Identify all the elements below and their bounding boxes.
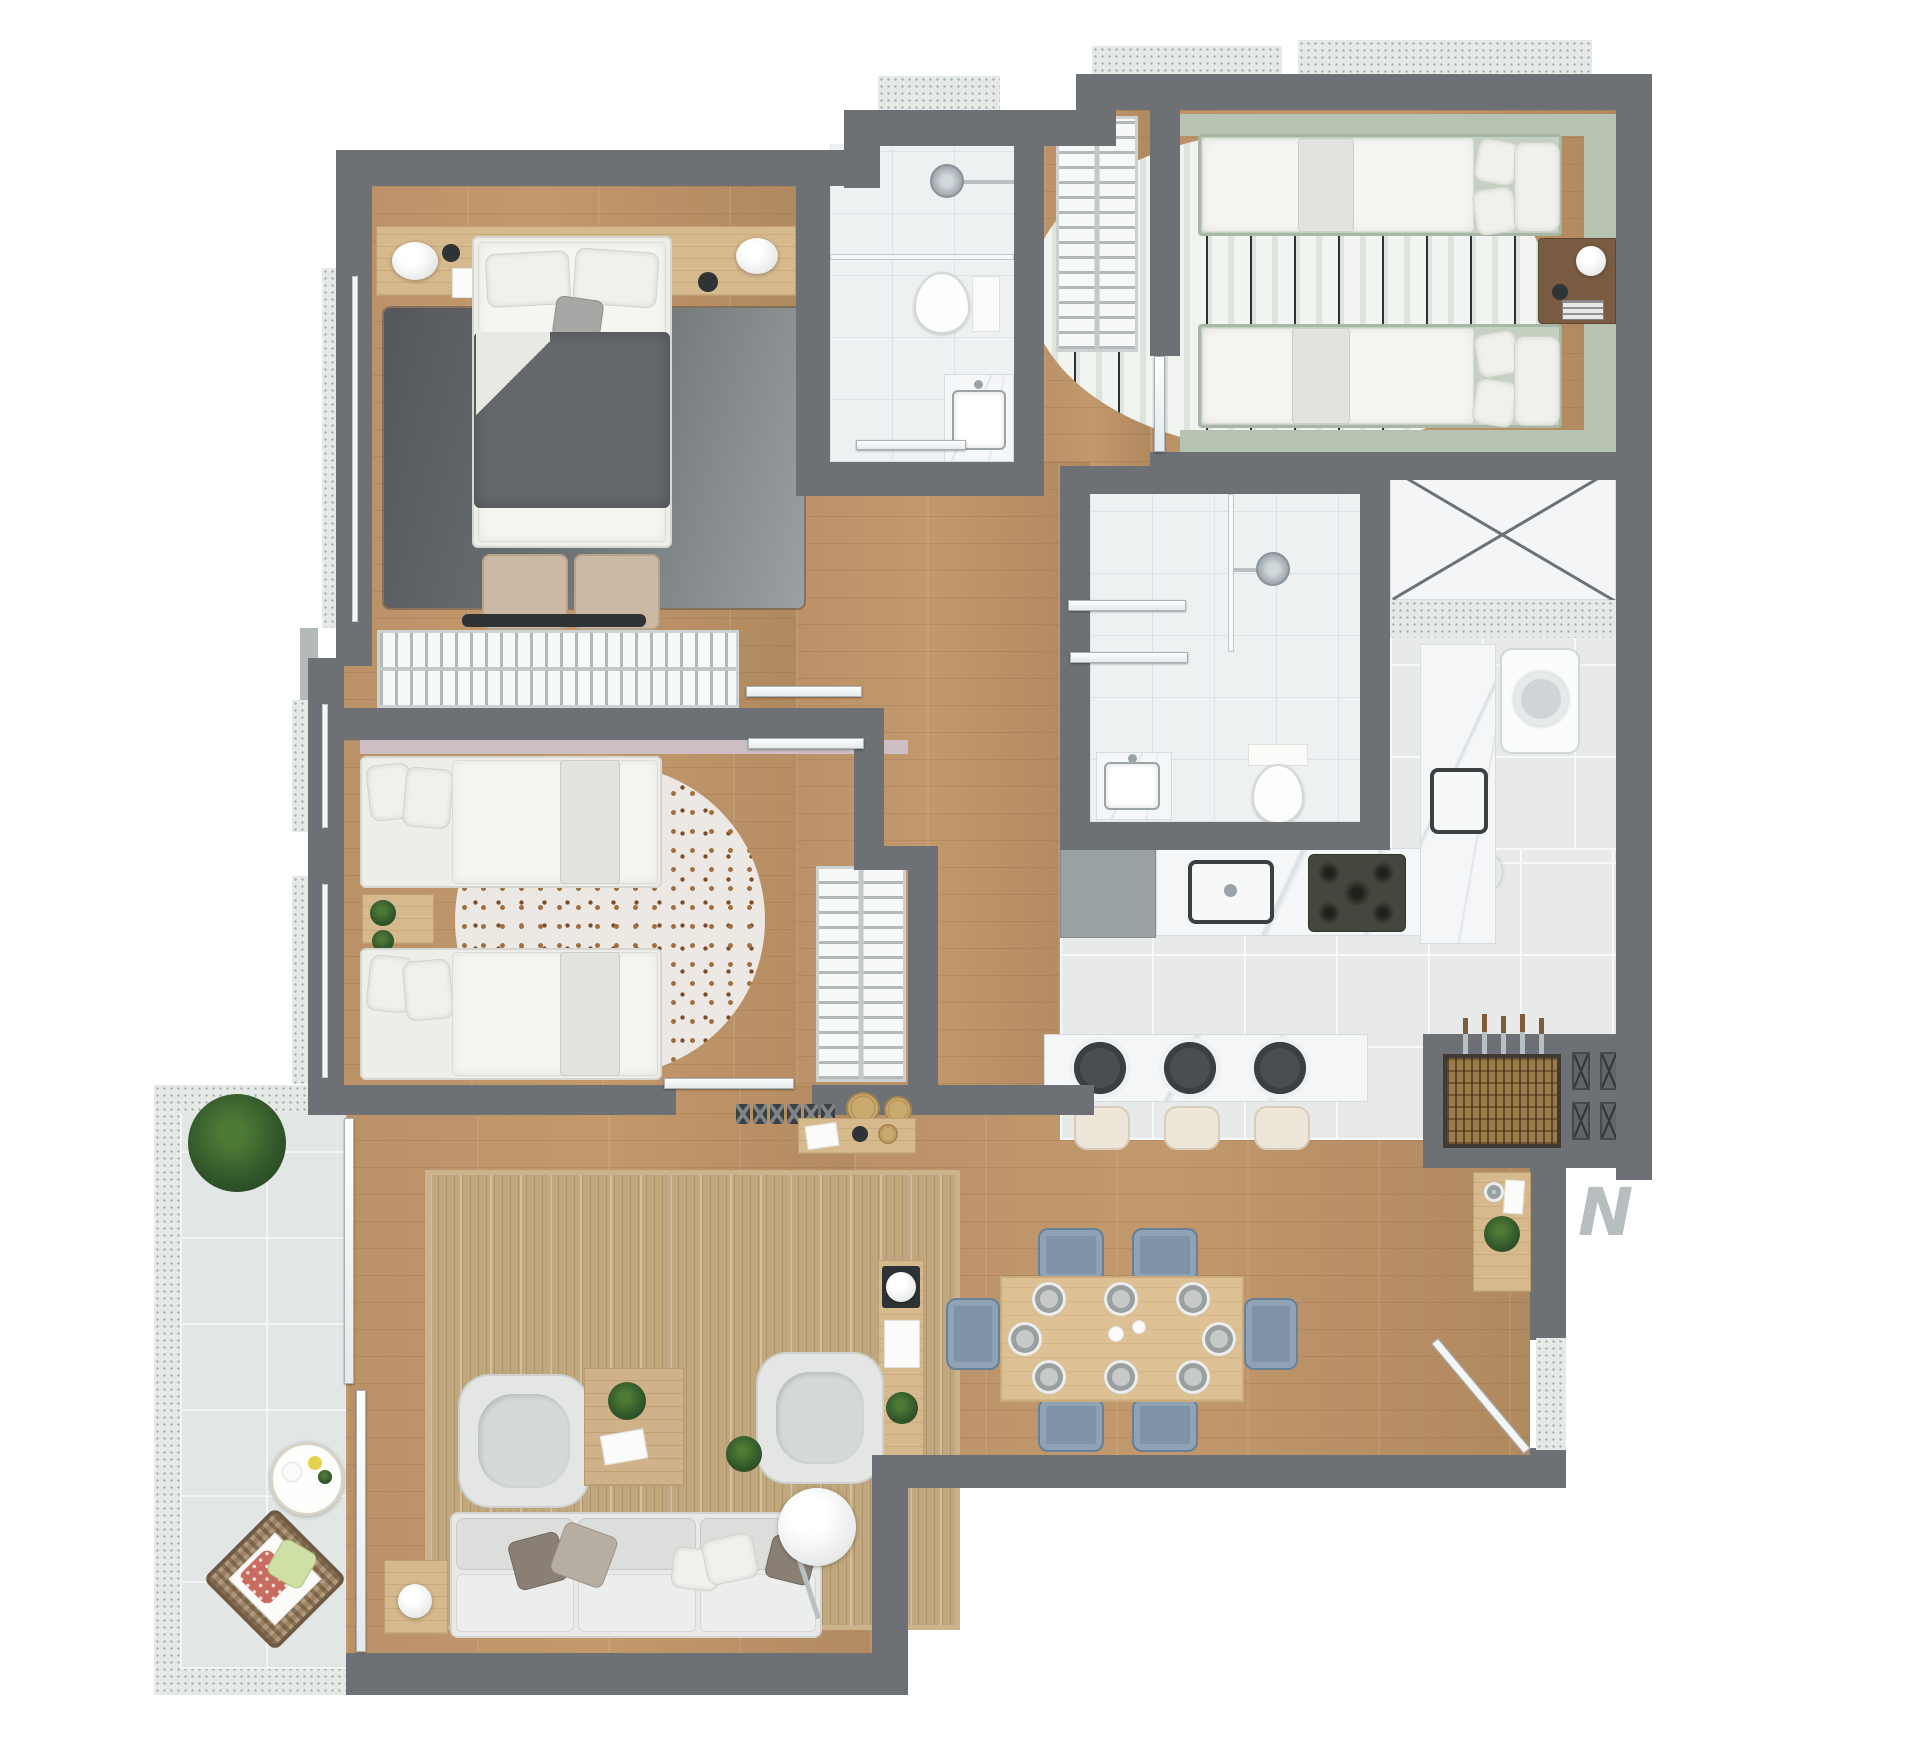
coffee-table-plant	[608, 1382, 646, 1420]
place-setting-3	[1176, 1282, 1210, 1316]
bath2-shower-head	[1256, 552, 1290, 586]
wall-right-lower	[1530, 1168, 1566, 1340]
dining-chair-bottom-2	[1132, 1398, 1198, 1452]
balcony-teapot	[282, 1462, 302, 1482]
wall-bedroom2-bottom	[308, 1085, 676, 1115]
wall-master-top	[336, 150, 844, 186]
bed3-twin-bed-2-pillow-c	[1514, 336, 1560, 426]
table-cup-1	[1108, 1326, 1124, 1342]
vent-grate-3	[1572, 1102, 1590, 1140]
dining-chair-left	[946, 1298, 1000, 1370]
bedroom2-bed-a-fold	[560, 760, 620, 884]
table-cup-2	[1132, 1320, 1146, 1334]
sill-bath1-window	[878, 76, 1000, 112]
wall-bath1-bottom	[796, 462, 1044, 496]
bedroom2-bed-a-pillow-2	[401, 766, 454, 830]
bed3-twin-bed-1-pillow-c	[1514, 142, 1560, 232]
wall-bedroom2-right-lower	[908, 846, 938, 1086]
bedroom2-wardrobe	[816, 866, 906, 1082]
stove-burner-2	[1372, 862, 1394, 884]
right-console-plate	[1484, 1182, 1504, 1202]
bedroom2-bed-b-fold	[560, 952, 620, 1076]
knife-2	[1482, 1014, 1487, 1054]
bath1-shower-glass	[830, 254, 1014, 260]
master-lamp-left	[392, 242, 438, 280]
balcony-sprig	[318, 1470, 332, 1484]
closet-slider-2	[748, 738, 864, 749]
wall-bath1-top	[844, 110, 1080, 146]
floor-plan-canvas: N	[0, 0, 1920, 1748]
balcony-plant	[188, 1094, 286, 1192]
bed3-platform-top	[1180, 114, 1616, 136]
wall-decor-x-3	[770, 1104, 784, 1124]
bedroom2-window-glass-b	[322, 884, 328, 1078]
bedroom2-bed-b-pillow-2	[401, 958, 454, 1022]
bed3-lamp	[1576, 246, 1606, 276]
balcony-door-glass-a	[344, 1118, 354, 1384]
wall-closet-bedroom2	[336, 708, 884, 740]
vent-grate-1	[1572, 1052, 1590, 1090]
wall-decor-x-2	[753, 1104, 767, 1124]
place-setting-8	[1202, 1322, 1236, 1356]
master-speaker	[698, 272, 718, 292]
master-tv	[462, 614, 646, 627]
wall-bedroom2-right-upper	[854, 708, 884, 852]
stove-burner-1	[1318, 862, 1340, 884]
place-setting-5	[1104, 1360, 1138, 1394]
wall-master-bath1	[796, 186, 830, 496]
knife-5	[1539, 1018, 1544, 1054]
place-setting-4	[1032, 1360, 1066, 1394]
sill-shaft	[1390, 600, 1616, 638]
bed3-clock	[1552, 284, 1568, 300]
knife-3	[1501, 1016, 1506, 1054]
bath2-toilet-tank	[1248, 744, 1308, 766]
side-table-decor	[398, 1584, 432, 1618]
bath2-door-slider-2	[1070, 652, 1188, 663]
bed3-twin-bed-2-pillow-b	[1471, 377, 1519, 428]
hall-shelf-book	[804, 1122, 839, 1150]
island-stool-2	[1164, 1106, 1220, 1150]
bed3-books	[1562, 300, 1604, 320]
island-plate-2	[1164, 1042, 1216, 1094]
bed3-twin-bed-2-fold	[1292, 328, 1350, 424]
bedroom2-bed-a-duvet	[452, 760, 658, 884]
armchair-right-cushion	[776, 1372, 864, 1464]
bed3-twin-bed-1-pillow-b	[1471, 185, 1519, 236]
sofa-seat-1	[456, 1574, 574, 1632]
floor-lamp-shade	[778, 1488, 856, 1566]
entry-landing	[1536, 1338, 1566, 1450]
hall-shelf-bowl-1	[852, 1126, 868, 1142]
place-setting-1	[1032, 1282, 1066, 1316]
laundry-sink	[1430, 768, 1488, 834]
bedroom2-bed-b-duvet	[452, 952, 658, 1076]
master-lamp-right	[736, 238, 778, 274]
bath2-door-slider-1	[1068, 600, 1186, 611]
bar-plant	[886, 1392, 918, 1424]
dining-chair-right	[1244, 1298, 1298, 1370]
knife-4	[1520, 1014, 1525, 1054]
master-blanket-fold	[476, 332, 550, 424]
bed3-platform-bottom	[1180, 430, 1616, 452]
right-console-plant	[1484, 1216, 1520, 1252]
balcony-door-glass-b	[356, 1390, 366, 1652]
master-alarm-clock	[442, 244, 460, 262]
island-stool-3	[1254, 1106, 1310, 1150]
right-console-mags	[1503, 1179, 1525, 1214]
sill-bedroom3-window-b	[1298, 40, 1592, 76]
laundry-washer-door	[1514, 672, 1568, 726]
hall-shoe-closet	[1056, 116, 1138, 352]
dining-chair-top-1	[1038, 1228, 1104, 1282]
place-setting-7	[1008, 1322, 1042, 1356]
hall-shelf-bowl-2	[878, 1124, 898, 1144]
bath2-sink	[1104, 762, 1160, 810]
wall-bath2-right	[1360, 466, 1390, 850]
wall-bedroom3-bottom	[1150, 452, 1616, 480]
kitchen-cabinet-block	[1060, 846, 1156, 938]
master-window-glass	[352, 276, 358, 622]
stove-burner-3	[1344, 880, 1370, 906]
place-setting-6	[1176, 1360, 1210, 1394]
wall-bath1-right	[1014, 144, 1044, 462]
bath2-toilet-bowl	[1252, 764, 1304, 824]
wall-decor-x-1	[736, 1104, 750, 1124]
bath2-faucet	[1128, 754, 1137, 763]
living-plant	[726, 1436, 762, 1472]
dining-chair-bottom-1	[1038, 1398, 1104, 1452]
bar-dome	[886, 1272, 916, 1302]
bath1-shower-arm	[958, 180, 1014, 184]
bath1-toilet-bowl	[914, 272, 970, 334]
wall-right-upper	[1616, 74, 1652, 1180]
dining-chair-top-2	[1132, 1228, 1198, 1282]
barbecue-grill	[1443, 1054, 1561, 1148]
bath2-shower-glass	[1228, 494, 1234, 652]
compass-north: N	[1578, 1180, 1648, 1250]
bath1-faucet	[974, 380, 983, 389]
wall-living-bottom	[346, 1653, 908, 1695]
bath1-toilet-tank	[972, 276, 1000, 332]
bedroom2-plant-1	[370, 900, 396, 926]
bedroom2-window-glass-a	[322, 704, 328, 828]
bed3-twin-bed-1-fold	[1298, 138, 1354, 232]
armchair-left-cushion	[478, 1394, 570, 1488]
bedroom3-door-slider	[1154, 356, 1165, 452]
stove-burner-4	[1318, 902, 1340, 924]
stove-burner-5	[1372, 902, 1394, 924]
bar-magazines	[884, 1320, 920, 1368]
kitchen-faucet	[1224, 884, 1237, 897]
knife-1	[1463, 1018, 1468, 1054]
balcony-lemons	[308, 1456, 322, 1470]
bedroom2-door-slider	[664, 1078, 794, 1089]
wall-dining-bottom	[872, 1455, 1566, 1488]
wall-top-right	[1076, 74, 1652, 110]
wall-bath2-bottom	[1060, 822, 1390, 850]
place-setting-2	[1104, 1282, 1138, 1316]
island-plate-3	[1254, 1042, 1306, 1094]
balcony-table	[270, 1442, 344, 1516]
bath1-door-slider	[856, 440, 966, 450]
master-wardrobe	[377, 630, 739, 708]
bath1-shower-head	[930, 164, 964, 198]
closet-slider-1	[746, 686, 862, 697]
wall-bedroom3-left	[1150, 110, 1180, 356]
